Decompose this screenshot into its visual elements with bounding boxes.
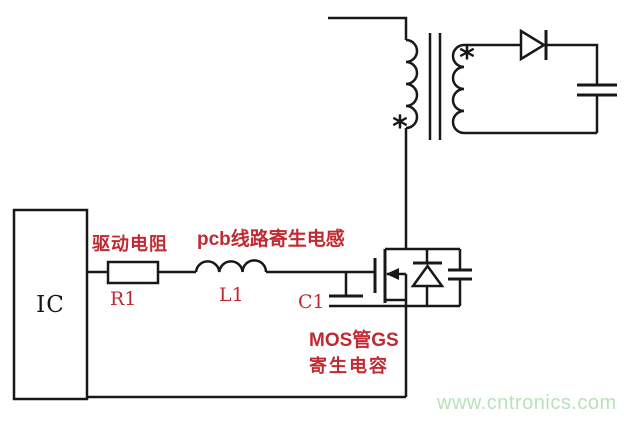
wires [87,18,460,397]
drive-resistor-label: 驱动电阻 [92,230,168,256]
mosfet-symbol [375,249,406,306]
body-diode-triangle [413,266,442,286]
primary-polarity-dot-icon: * [392,110,408,145]
ic-label: IC [14,210,87,399]
resistor-r1-designator: R1 [110,288,136,310]
snubber-capacitor-symbol [448,249,472,306]
transformer-symbol: * * [392,33,475,145]
output-capacitor-symbol [577,85,617,95]
pcb-parasitic-inductance-label: pcb线路寄生电感 [197,224,345,251]
primary-top-wire [328,18,406,40]
inductor-l1-designator: L1 [219,284,244,306]
mos-gs-label-line1: MOS管GS [309,325,399,352]
mosfet-arrow-head [386,268,399,280]
output-rectifier-diode [521,30,546,60]
watermark: www.cntronics.com [437,392,617,415]
capacitor-c1-designator: C1 [298,291,325,313]
diode-to-cap-wire [546,45,597,85]
output-diode-triangle [521,31,544,59]
resistor-r1-symbol [108,262,158,283]
transformer-core [430,33,440,140]
secondary-output-loop [464,45,597,133]
schematic-canvas: * * IC 驱动电阻 pcb线路寄生电感 R1 L1 C1 MOS管GS 寄生… [0,0,624,421]
mosfet-body-diode [413,249,442,306]
mos-gs-label-line2: 寄生电容 [309,352,389,378]
inductor-l1-symbol [196,260,266,272]
